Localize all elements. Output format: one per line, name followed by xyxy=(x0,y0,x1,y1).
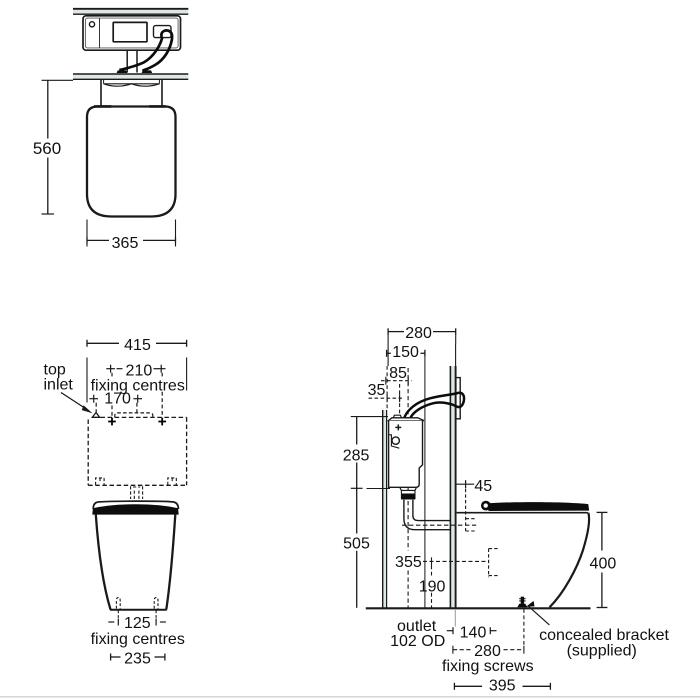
svg-text:125: 125 xyxy=(124,615,151,632)
svg-text:560: 560 xyxy=(33,139,61,158)
svg-text:85: 85 xyxy=(389,365,407,382)
svg-text:415: 415 xyxy=(124,337,151,354)
svg-text:102 OD: 102 OD xyxy=(390,633,445,650)
svg-text:fixing centres: fixing centres xyxy=(91,631,185,648)
svg-text:inlet: inlet xyxy=(44,376,74,393)
svg-text:505: 505 xyxy=(343,535,370,552)
svg-text:395: 395 xyxy=(489,677,516,694)
svg-text:35: 35 xyxy=(368,382,386,399)
svg-text:140: 140 xyxy=(460,625,487,642)
svg-text:170: 170 xyxy=(104,391,131,408)
svg-text:(supplied): (supplied) xyxy=(567,643,637,660)
svg-text:285: 285 xyxy=(343,447,370,464)
svg-text:190: 190 xyxy=(419,578,446,595)
svg-text:355: 355 xyxy=(395,554,422,571)
svg-text:280: 280 xyxy=(405,325,432,342)
svg-text:235: 235 xyxy=(124,650,151,667)
svg-text:45: 45 xyxy=(474,478,492,495)
svg-text:fixing screws: fixing screws xyxy=(442,658,534,675)
svg-text:365: 365 xyxy=(112,235,139,252)
svg-text:150: 150 xyxy=(392,344,419,361)
svg-text:400: 400 xyxy=(590,556,617,573)
